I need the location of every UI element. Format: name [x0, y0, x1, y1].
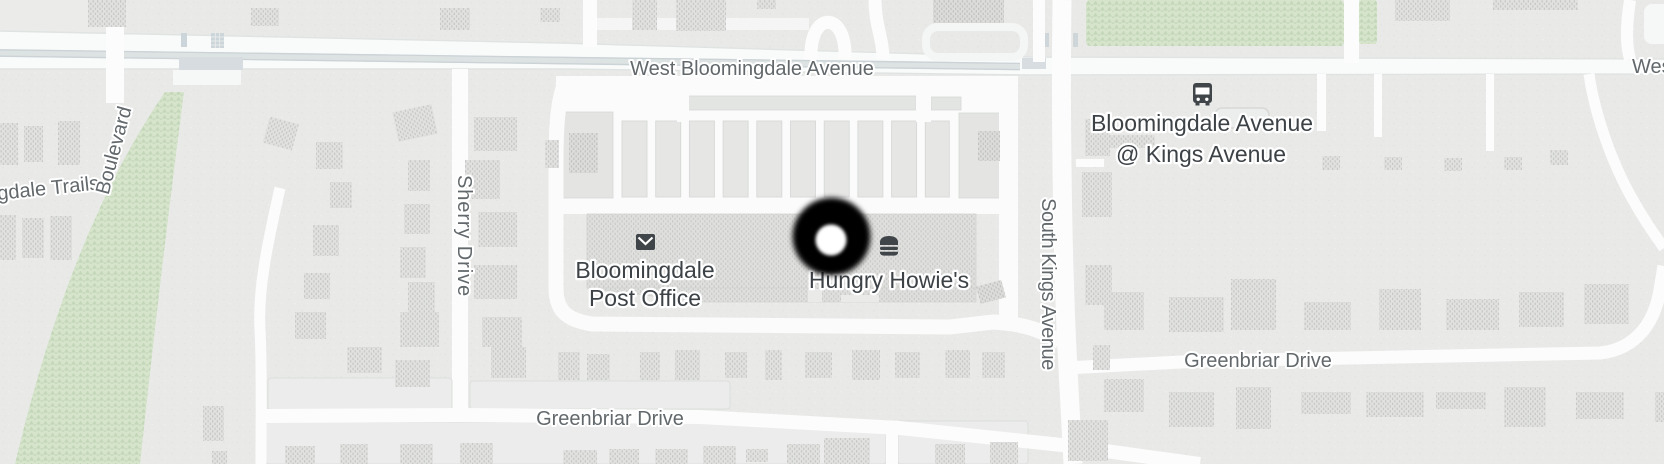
svg-text:Sherry Drive: Sherry Drive — [453, 175, 475, 297]
svg-text:Greenbriar Drive: Greenbriar Drive — [1184, 350, 1332, 372]
svg-text:Greenbriar Drive: Greenbriar Drive — [536, 408, 684, 430]
svg-text:South Kings Avenue: South Kings Avenue — [1037, 198, 1059, 370]
svg-text:@ Kings Avenue: @ Kings Avenue — [1116, 141, 1286, 167]
svg-text:West Bloomingdale Avenue: West Bloomingdale Avenue — [630, 58, 874, 80]
svg-text:Bloomingdale: Bloomingdale — [575, 257, 714, 283]
svg-text:Bloomingdale Avenue: Bloomingdale Avenue — [1091, 110, 1313, 136]
svg-text:West Bloo: West Bloo — [1632, 56, 1664, 78]
svg-text:Post Office: Post Office — [589, 285, 701, 311]
